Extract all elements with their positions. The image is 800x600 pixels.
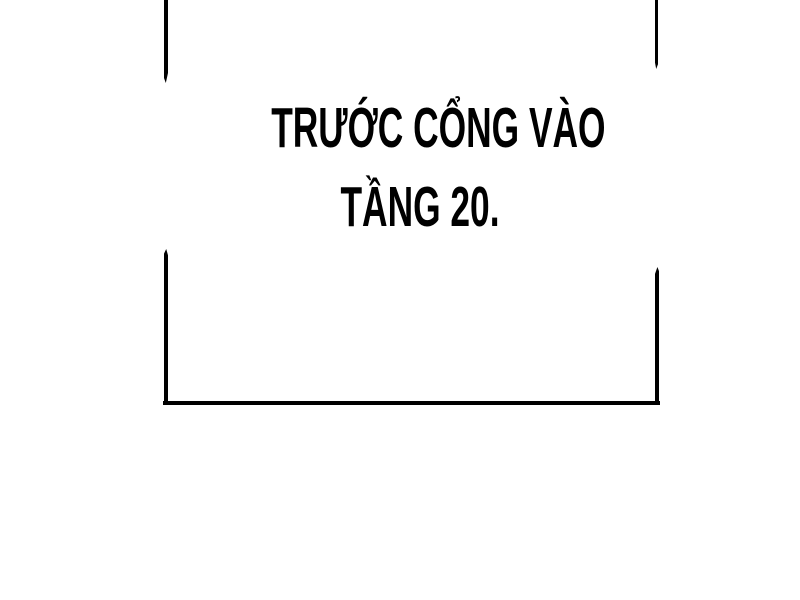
panel-border-top-right-stroke [655,0,658,69]
panel-border-bottom-stroke [163,401,660,405]
caption-line-1: TRƯỚC CỔNG VÀO [271,100,569,157]
caption-box: TRƯỚC CỔNG VÀO TẦNG 20. [271,100,569,236]
panel-border-top-left-stroke [164,0,168,83]
panel-border-bottom-left-stroke [164,249,168,405]
panel-border-bottom-right-stroke [655,267,659,405]
caption-line-2: TẦNG 20. [271,179,569,236]
comic-page: TRƯỚC CỔNG VÀO TẦNG 20. [0,0,800,600]
